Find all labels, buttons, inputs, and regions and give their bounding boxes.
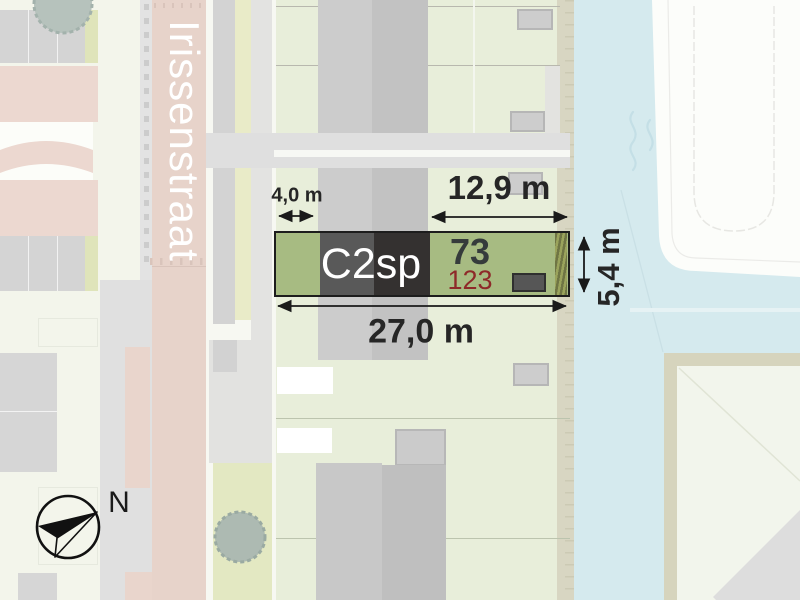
garden-shed <box>513 363 549 386</box>
house-number: 123 <box>447 268 492 293</box>
plot-bank-hatch <box>555 233 567 295</box>
gray-building-band <box>372 0 428 233</box>
faint-parcel-outline <box>38 487 98 565</box>
pink-building-block <box>125 347 150 488</box>
dimension-depth-label: 5,4 m <box>591 227 627 306</box>
compass-north-label: N <box>108 486 130 520</box>
street-name-label: Irissenstraat <box>160 20 208 262</box>
gray-building-band <box>318 0 372 233</box>
green-strip <box>235 0 251 133</box>
gray-outbuilding <box>395 429 446 466</box>
gray-building-block <box>213 340 237 372</box>
building-divider <box>28 236 29 291</box>
plot-number: 73 <box>450 236 490 268</box>
give-way-line <box>152 266 206 267</box>
pink-building-block <box>125 572 152 600</box>
plot-shed <box>512 273 546 292</box>
pink-building-block <box>0 66 98 122</box>
bordered-parcel <box>664 353 800 600</box>
grass-verge <box>213 463 272 600</box>
gray-building-band <box>316 463 382 600</box>
building-divider <box>0 411 57 412</box>
gray-building-band <box>318 297 372 360</box>
dimension-left-label: 4,0 m <box>271 185 322 208</box>
white-outbuilding <box>277 367 333 394</box>
gray-building-block <box>213 168 235 324</box>
green-strip <box>85 236 98 291</box>
parcel-boundary-line <box>473 0 475 133</box>
gray-building-band <box>382 465 446 600</box>
faint-parcel-outline <box>38 318 98 347</box>
gray-building-block <box>213 0 235 133</box>
pink-building-block <box>0 180 98 236</box>
gray-building-block <box>18 573 57 600</box>
gray-building-block <box>0 10 85 63</box>
green-strip <box>85 10 98 63</box>
parcel-divider-line <box>276 418 570 419</box>
building-divider <box>28 10 29 63</box>
plot-number-group: 73 123 <box>422 233 518 295</box>
garden-shed <box>517 9 553 30</box>
gray-building-block <box>0 353 57 472</box>
bridge-water-band <box>0 122 93 180</box>
parking-tick-line <box>144 4 149 266</box>
site-plan-map: C2sp 73 123 Irissenstraat 4,0 m 12,9 m 2… <box>0 0 800 600</box>
quay-tick-marks <box>565 0 574 600</box>
building-divider <box>57 236 58 291</box>
garden-shed <box>510 111 545 132</box>
green-strip <box>235 168 251 320</box>
crossing-dashes <box>154 3 204 8</box>
road-center-line <box>274 150 570 157</box>
plot-c2sp[interactable]: C2sp 73 123 <box>274 231 570 297</box>
white-outbuilding <box>277 428 332 453</box>
gray-building-block <box>0 236 85 291</box>
dimension-total-label: 27,0 m <box>368 313 474 352</box>
plot-code-label: C2sp <box>316 233 426 295</box>
building-divider <box>57 10 58 63</box>
dimension-right-label: 12,9 m <box>448 169 551 207</box>
plot-garden-left <box>276 233 320 295</box>
